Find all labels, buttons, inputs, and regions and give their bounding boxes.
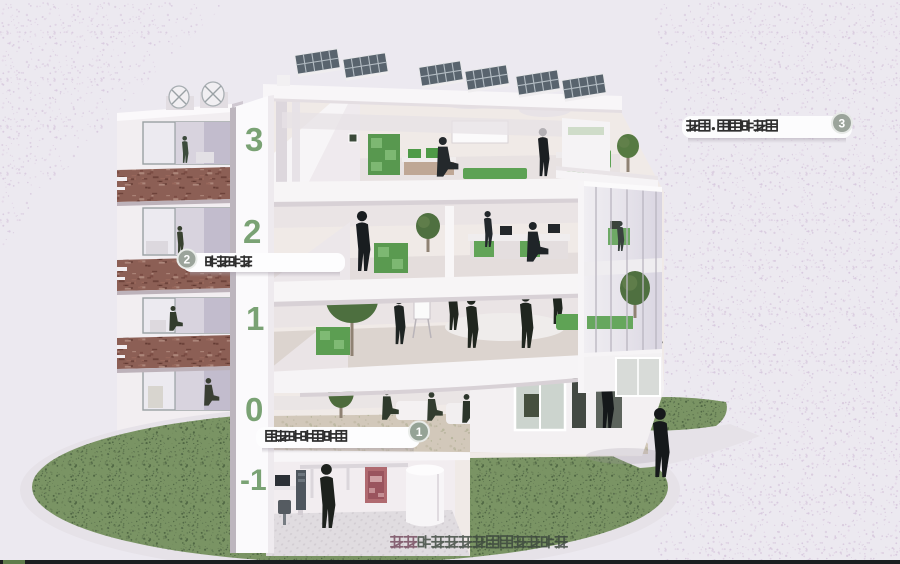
svg-text:1: 1	[246, 300, 264, 337]
svg-text:3: 3	[245, 121, 263, 158]
svg-text:2: 2	[243, 213, 261, 250]
svg-text:0: 0	[245, 391, 263, 428]
svg-text:3: 3	[839, 117, 846, 131]
svg-text:-1: -1	[240, 464, 267, 497]
svg-text:2: 2	[184, 253, 191, 267]
svg-text:1: 1	[416, 425, 423, 439]
